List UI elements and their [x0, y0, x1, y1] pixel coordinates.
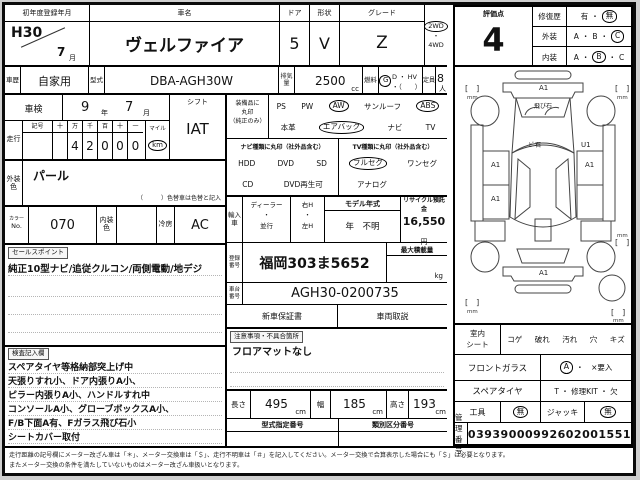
seat-label-1: 室内	[455, 329, 500, 340]
shift-cell: シフト IAT	[169, 95, 225, 159]
int-c: C	[619, 53, 624, 62]
recycle-cell: リサイクル預託金 16,550 円	[401, 197, 447, 242]
handle-cell: 右H ・ 左H	[291, 197, 325, 242]
inspector-section: 検査記入欄 スペアタイヤ等格納部突上げ中 天張りすれ小、ドア内張りA小、 ピラー…	[5, 347, 225, 446]
glass-options: ・ ×要入	[576, 362, 612, 373]
grade-cell: グレード Z	[340, 5, 425, 67]
damage-windshield: 飛び石	[534, 102, 552, 110]
grade-value: Z	[340, 22, 424, 64]
drive-type-cell: 2WD ・ 4WD	[425, 5, 447, 67]
glass-value-cell: A ・ ×要入	[541, 355, 631, 380]
mgmt-no: 03939000992602001551	[468, 423, 631, 445]
tread-bracket: [ ]	[465, 298, 479, 307]
chassis-label: 車台番号	[227, 283, 243, 304]
inspector-note: F/B下面A有、Fガラス飛び石小	[8, 416, 222, 430]
capacity-label: 定員	[423, 67, 436, 95]
equipment-label: 装備品に 丸印 （純正のみ）	[227, 95, 269, 138]
dealer-option: ディーラー	[243, 200, 290, 210]
mgmt-row: 管理番号 03939000992602001551	[455, 423, 631, 445]
nav-dvd: DVD	[278, 159, 295, 168]
odo-header: 万	[68, 121, 82, 133]
mm-label: mm	[617, 95, 628, 101]
import-label: 輸入車	[227, 197, 243, 242]
history-value: 自家用	[21, 67, 89, 95]
nav-sd: SD	[316, 159, 327, 168]
equipment-options-1: PS PW AW サンルーフ ABS	[269, 95, 447, 117]
reg-no-value: 福岡303ま5652	[243, 243, 387, 282]
color-no-label-2: No.	[5, 222, 28, 230]
caution-text: フロアマットなし	[232, 343, 312, 358]
mm-label: mm	[467, 95, 478, 101]
seat-yogore: 汚れ	[562, 334, 577, 345]
ext-b: B	[592, 32, 597, 41]
nav-type-label: ナビ種類に丸印（社外品含む）	[227, 139, 338, 153]
nav-hdd: HDD	[238, 159, 255, 168]
mm-label: mm	[617, 233, 628, 239]
int-b-selected: B	[592, 51, 605, 63]
interior-options: A ・ B ・ C	[567, 47, 631, 67]
warranty-row: 新車保証書 車両取説	[227, 305, 447, 329]
odometer-columns: 記号 十 万4 千2 百0 十0 一0	[23, 121, 145, 159]
inspector-note: スペアタイヤ等格納部突上げ中	[8, 360, 222, 374]
car-name-value: ヴェルファイア	[90, 22, 279, 64]
shape-value: V	[310, 22, 339, 64]
model-year-label: モデル年式	[325, 197, 400, 211]
dot: ・	[591, 11, 599, 22]
first-registration-cell: 初年度登録年月 H30 7 月	[5, 5, 90, 67]
ext-color-label: 外装色	[5, 161, 23, 207]
cm-unit: cm	[372, 408, 383, 416]
shaken-year: 9	[81, 100, 89, 115]
blank-line	[8, 283, 222, 297]
equipment-options-2: 本革 エアバック ナビ TV	[269, 117, 447, 138]
footer-notes: 走行距離の記号欄にメーター改ざん車は「＊」、メーター交換車は「＄」、走行不明車は…	[9, 451, 631, 471]
nav-dvd-play: DVD再生可	[284, 179, 323, 190]
cm-unit: cm	[435, 408, 446, 416]
color-no-value: 070	[29, 207, 97, 243]
drive-2wd-selected: 2WD	[424, 21, 448, 32]
footer-note-1: 走行距離の記号欄にメーター改ざん車は「＊」、メーター交換車は「＄」、走行不明車は…	[9, 451, 631, 461]
dot: ・	[601, 31, 609, 42]
year-unit: 年	[101, 108, 108, 118]
damage-rear: A1	[539, 269, 548, 277]
seat-kizu: キズ	[610, 334, 625, 345]
chassis-row: 車台番号 AGH30-0200735	[227, 283, 447, 305]
exterior-options: A ・ B ・ C	[567, 27, 631, 46]
shaken-row: 車検 9 年 7 月	[5, 95, 169, 121]
equip-leather: 本革	[281, 122, 296, 133]
inspector-note: コンソールA小、グローブボックスA小、	[8, 402, 222, 416]
nav-options-1: HDD DVD SD	[227, 153, 338, 174]
equipment-row: 装備品に 丸印 （純正のみ） PS PW AW サンルーフ ABS 本革 エアバ…	[227, 95, 447, 139]
tread-bracket: [ ]	[465, 84, 479, 93]
ext-color-row: 外装色 パール （ ）色替車は色替と記入	[5, 159, 225, 207]
dot: ・	[582, 52, 590, 63]
header-row2: 車歴 自家用 型式 DBA-AGH30W 排気量 2500 cc 燃料 G D …	[5, 67, 447, 95]
inspector-note: 天張りすれ小、ドア内張りA小、	[8, 374, 222, 388]
sales-point-text: 純正10型ナビ/追従クルコン/両側電動/地デジ	[8, 261, 222, 276]
tv-oneseg: ワンセグ	[407, 158, 437, 169]
odo-header: 一	[128, 121, 143, 133]
odo-header: 十	[113, 121, 127, 133]
right-handle: 右H	[291, 200, 324, 210]
evaluation-table: 評価点 4 修復歴 有 ・ 無 外装 A ・ B ・ C	[455, 7, 631, 67]
form-bottom-border	[5, 446, 633, 448]
type-desig-label: 型式指定番号	[227, 419, 338, 432]
tv-type-label: TV種類に丸印（社外品含む）	[339, 139, 447, 153]
exterior-label: 外装	[533, 27, 567, 46]
shape-label: 形状	[310, 5, 339, 22]
caution-label: 注意事項・不具合箇所	[230, 331, 303, 343]
car-damage-diagram: [ ] mm [ ] mm [ ] mm [ ] mm [ ] mm A1 飛び…	[455, 67, 631, 323]
right-panel: 評価点 4 修復歴 有 ・ 無 外装 A ・ B ・ C	[453, 5, 633, 446]
equip-abs-selected: ABS	[416, 100, 439, 112]
seat-ana: 穴	[590, 334, 598, 345]
color-no-label: カラー No.	[5, 207, 29, 243]
displacement-value: 2500	[315, 74, 346, 88]
shape-cell: 形状 V	[310, 5, 340, 67]
shift-label: シフト	[170, 97, 225, 107]
manual-label: 車両取説	[338, 305, 447, 327]
jack-label: ジャッキ	[541, 402, 585, 422]
capacity-unit: 人	[439, 84, 446, 94]
dot: ・	[582, 31, 590, 42]
spare-row: スペアタイヤ T ・ 修理KIT ・ 欠	[455, 381, 631, 402]
score-label: 評価点	[455, 9, 532, 19]
inspector-note: ピラー内張りA小、ハンドルすれ中	[8, 388, 222, 402]
km-cell: マイル km	[145, 121, 169, 159]
recycle-value: 16,550	[403, 215, 445, 228]
width-value: 185	[343, 397, 366, 411]
odo-header: 記号	[23, 121, 52, 133]
cooling-label: 冷房	[157, 207, 175, 243]
chassis-value: AGH30-0200735	[243, 283, 447, 304]
dot: ・	[609, 52, 617, 63]
repair-yes: 有	[581, 11, 589, 22]
dot: ・	[243, 210, 290, 220]
km-selected: km	[148, 140, 167, 151]
car-name-label: 車名	[90, 5, 279, 22]
blank-line	[8, 301, 222, 315]
equip-aw-selected: AW	[329, 100, 349, 112]
header-row1: 初年度登録年月 H30 7 月 車名 ヴェルファイア ドア 5 形状 V グレー…	[5, 5, 447, 67]
ext-a: A	[574, 32, 579, 41]
tool-row: 工具 無 ジャッキ 無	[455, 402, 631, 423]
max-load-unit: kg	[435, 272, 444, 280]
model-code-label: 型式	[89, 67, 105, 95]
first-reg-month: 7	[57, 45, 65, 59]
footer-note-2: またメーター交換の条件を満たしていないものはメーター改ざん車扱いとなります。	[9, 461, 631, 471]
odometer-row: 走行 記号 十 万4 千2 百0 十0 一0 マイル km	[5, 121, 169, 159]
fuel-label: 燃料	[363, 67, 379, 95]
odo-header: 十	[53, 121, 67, 133]
glass-row: フロントガラス A ・ ×要入	[455, 355, 631, 381]
cooling-value: AC	[175, 207, 225, 243]
seat-koge: コゲ	[507, 334, 522, 345]
odo-digit: 2	[83, 133, 97, 158]
blank-line	[8, 319, 222, 333]
shaken-month-unit: 月	[143, 108, 150, 118]
seat-yabure: 破れ	[535, 334, 550, 345]
exterior-grade-row: 外装 A ・ B ・ C	[533, 27, 631, 47]
damage-right-front-door: A1	[585, 161, 594, 169]
shaken-label: 車検	[5, 95, 63, 121]
odo-digit: 0	[128, 133, 143, 158]
color-no-label-1: カラー	[5, 215, 28, 222]
damage-left-front-door: A1	[491, 161, 500, 169]
damage-right-front: U1	[581, 141, 591, 149]
nav-cd: CD	[242, 180, 253, 189]
condition-table: 室内 シート コゲ 破れ 汚れ 穴 キズ フロントガラス A ・ ×要入	[455, 323, 631, 444]
odo-digit: 4	[68, 133, 82, 158]
seat-row: 室内 シート コゲ 破れ 汚れ 穴 キズ	[455, 325, 631, 355]
length-value: 495	[265, 397, 288, 411]
odo-header: 百	[98, 121, 112, 133]
first-reg-label: 初年度登録年月	[5, 5, 89, 22]
model-code-value: DBA-AGH30W	[105, 67, 279, 95]
length-label: 長さ	[227, 391, 251, 418]
fuel-options: D ・ HV ・（ ）	[392, 71, 422, 91]
repair-options: 有 ・ 無	[567, 7, 631, 26]
odo-header: 千	[83, 121, 97, 133]
equipment-label-3: （純正のみ）	[227, 117, 268, 126]
equip-tv: TV	[426, 123, 436, 132]
month-unit: 月	[69, 53, 76, 63]
color-no-row: カラー No. 070 内装色 冷房 AC	[5, 207, 225, 245]
model-year-value: 年 不明	[325, 211, 400, 241]
blank-line	[230, 375, 444, 387]
mileage-label: 走行	[5, 121, 23, 159]
caution-section: 注意事項・不具合箇所 フロアマットなし	[227, 329, 447, 391]
spare-options: T ・ 修理KIT ・ 欠	[541, 381, 631, 401]
height-value: 193	[413, 397, 436, 411]
width-cell: 185 cm	[331, 391, 387, 418]
dimensions-row: 長さ 495 cm 幅 185 cm 高さ 193 cm	[227, 391, 447, 419]
dot: ・	[433, 32, 440, 42]
equipment-label-2: 丸印	[227, 108, 268, 117]
parallel-option: 並行	[243, 221, 290, 231]
door-label: ドア	[280, 5, 309, 22]
length-cell: 495 cm	[251, 391, 311, 418]
tread-bracket: [ ]	[615, 84, 629, 93]
warranty-label: 新車保証書	[227, 305, 338, 327]
inspector-note: シートカバー取付	[8, 430, 222, 444]
tv-fullseg-selected: フルセグ	[349, 157, 387, 169]
left-handle: 左H	[291, 221, 324, 231]
tool-none-selected: 無	[513, 406, 529, 418]
height-label: 高さ	[387, 391, 409, 418]
equip-navi: ナビ	[387, 122, 402, 133]
type-no-row: 型式指定番号 類別区分番号	[227, 419, 447, 446]
equip-airbag-selected: エアバック	[319, 121, 364, 133]
reg-no-row: 登録番号 福岡303ま5652 最大積載量 kg	[227, 243, 447, 283]
int-color-label: 内装色	[97, 207, 117, 243]
door-value: 5	[280, 22, 309, 64]
ext-c-selected: C	[611, 30, 624, 42]
drive-4wd: 4WD	[428, 41, 444, 51]
repair-label: 修復歴	[533, 7, 567, 26]
mgmt-label: 管理番号	[455, 423, 468, 445]
nav-options-2: CD DVD再生可	[227, 174, 338, 195]
interior-grade-row: 内装 A ・ B ・ C	[533, 47, 631, 67]
interior-label: 内装	[533, 47, 567, 67]
fuel-selected: G	[379, 75, 391, 86]
shaken-month: 7	[125, 100, 133, 115]
shift-value: IAT	[170, 107, 225, 151]
tv-analog: アナログ	[357, 179, 387, 190]
damage-roof: ﾋﾞ石	[529, 142, 541, 149]
jack-none-selected: 無	[600, 406, 616, 418]
spare-label: スペアタイヤ	[455, 381, 541, 401]
mile-label: マイル	[146, 124, 169, 132]
dealer-cell: ディーラー ・ 並行	[243, 197, 291, 242]
inspector-label: 検査記入欄	[8, 348, 49, 360]
tv-options-1: フルセグ ワンセグ	[339, 153, 447, 174]
class-no-label: 類別区分番号	[339, 419, 447, 432]
import-row: 輸入車 ディーラー ・ 並行 右H ・ 左H モデル年式 年 不明 リサイクル預…	[227, 197, 447, 243]
equip-pw: PW	[301, 102, 313, 111]
tool-value-cell: 無	[501, 402, 541, 422]
damage-front-bumper: A1	[539, 84, 548, 92]
recycle-label: リサイクル預託金	[401, 197, 447, 210]
score-value: 4	[455, 19, 532, 61]
tread-bracket: [ ]	[615, 238, 629, 247]
int-color-value	[117, 207, 157, 243]
equipment-label-1: 装備品に	[227, 99, 268, 108]
max-load-label: 最大積載量	[387, 243, 447, 256]
ext-color-value: パール	[33, 167, 69, 184]
score-cell: 評価点 4	[455, 7, 533, 67]
shaken-value: 9 年 7 月	[63, 95, 169, 121]
fuel-cell: G D ・ HV ・（ ）	[379, 67, 423, 95]
sales-point-label: セールスポイント	[8, 247, 68, 259]
cm-unit: cm	[295, 408, 306, 416]
blank-line	[230, 361, 444, 373]
seat-label: 室内 シート	[455, 325, 501, 354]
reg-no-label: 登録番号	[227, 243, 243, 282]
repair-no-selected: 無	[602, 10, 618, 22]
auction-sheet: 初年度登録年月 H30 7 月 車名 ヴェルファイア ドア 5 形状 V グレー…	[2, 2, 636, 476]
displacement-cell: 2500 cc	[295, 67, 363, 95]
damage-left-rear-door: A1	[491, 195, 500, 203]
max-load-cell: 最大積載量 kg	[387, 243, 447, 282]
glass-label: フロントガラス	[455, 355, 541, 380]
jack-value-cell: 無	[585, 402, 631, 422]
repair-row: 修復歴 有 ・ 無	[533, 7, 631, 27]
mm-label: mm	[467, 309, 478, 315]
equip-ps: PS	[277, 102, 286, 111]
color-change-note: （ ）色替車は色替と記入	[137, 193, 221, 202]
glass-a-selected: A	[560, 361, 573, 374]
odo-digit: 0	[98, 133, 112, 158]
odo-digit	[53, 133, 67, 158]
int-a: A	[574, 53, 579, 62]
dot: ・	[291, 210, 324, 220]
seat-label-2: シート	[455, 340, 500, 351]
height-cell: 193 cm	[409, 391, 447, 418]
door-cell: ドア 5	[280, 5, 310, 67]
odo-digit	[23, 133, 52, 158]
displacement-unit: cc	[351, 85, 359, 93]
equip-sunroof: サンルーフ	[364, 101, 401, 112]
grade-label: グレード	[340, 5, 424, 22]
odo-digit: 0	[113, 133, 127, 158]
history-label: 車歴	[5, 67, 21, 95]
width-label: 幅	[311, 391, 331, 418]
nav-tv-section: ナビ種類に丸印（社外品含む） TV種類に丸印（社外品含む） HDD DVD SD…	[227, 139, 447, 197]
capacity-cell: 8 人	[436, 67, 447, 95]
displacement-label: 排気量	[279, 67, 295, 95]
tread-bracket: [ ]	[611, 308, 625, 317]
tv-options-2: アナログ	[339, 174, 447, 195]
car-name-cell: 車名 ヴェルファイア	[90, 5, 280, 67]
model-year-cell: モデル年式 年 不明	[325, 197, 401, 242]
seat-options: コゲ 破れ 汚れ 穴 キズ	[501, 325, 631, 354]
sales-point-section: セールスポイント 純正10型ナビ/追従クルコン/両側電動/地デジ	[5, 245, 225, 347]
